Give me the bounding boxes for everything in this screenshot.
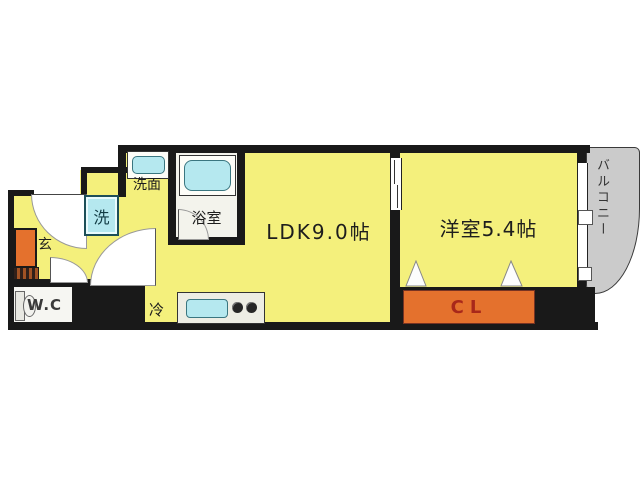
ldk-label: LDK9.0帖 [248,216,390,245]
wc-label: W.C [27,296,62,314]
closet: CL [403,290,535,324]
window-frame-notch-1 [578,210,593,225]
entrance-mat [13,267,39,280]
washing-machine-label: 洗 [93,204,109,228]
sliding-door-panel-line [394,160,395,184]
stove-burner-left [232,302,243,313]
floorplan-canvas: バルコニー CL 洗 [0,0,640,480]
wall-corridor-top [84,167,127,173]
kitchen-sink [186,299,228,318]
bathtub-tub [184,160,231,191]
bathtub [179,155,236,196]
wall-washroom-divider [168,150,176,237]
window-frame-notch-2 [578,267,592,281]
washbasin-bowl [132,156,165,174]
washing-machine: 洗 [84,195,119,236]
balcony-label: バルコニー [592,158,611,238]
wall-top [118,145,590,153]
bathroom-label: 浴室 [176,207,237,228]
kitchen-counter [177,292,265,324]
wall-door-hinge-stub [81,167,87,196]
sliding-door [390,158,402,210]
shoe-cabinet [14,228,37,268]
washroom-label: 洗面 [126,174,168,194]
wall-bathroom-right [237,145,245,245]
closet-door-mark-left [405,260,427,287]
closet-label: CL [451,297,488,318]
closet-door-mark-right [500,260,523,287]
bedroom-label: 洋室5.4帖 [400,213,577,242]
sliding-door-panel-line2 [397,185,398,208]
refrigerator-label: 冷 [149,299,164,320]
stove-burner-right [246,302,257,313]
entrance-label: 玄 [38,234,52,254]
